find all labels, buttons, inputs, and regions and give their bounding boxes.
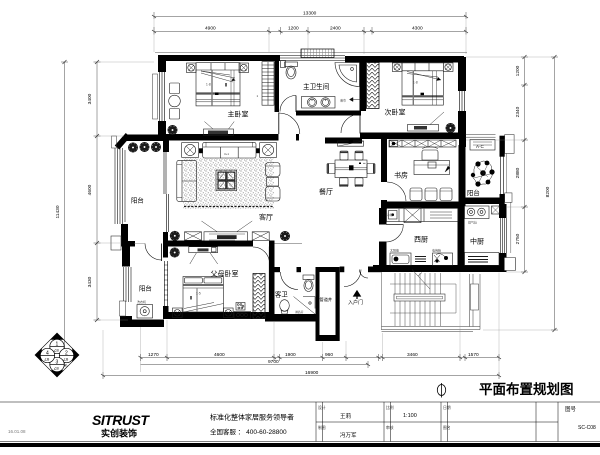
svg-text:淋浴房: 淋浴房 bbox=[295, 310, 304, 314]
svg-text:SITRUST: SITRUST bbox=[92, 412, 150, 428]
svg-text:平面布置规划图: 平面布置规划图 bbox=[479, 381, 574, 397]
svg-text:8200: 8200 bbox=[545, 186, 551, 197]
svg-text:西厨: 西厨 bbox=[414, 236, 428, 244]
svg-text:1270: 1270 bbox=[148, 352, 159, 358]
svg-text:3: 3 bbox=[56, 360, 59, 366]
svg-text:客厅: 客厅 bbox=[259, 213, 273, 222]
svg-text:入户门: 入户门 bbox=[348, 299, 363, 306]
svg-text:1200: 1200 bbox=[515, 65, 521, 76]
svg-text:王莉: 王莉 bbox=[340, 412, 352, 420]
svg-text:4600: 4600 bbox=[214, 352, 225, 358]
svg-text:图名: 图名 bbox=[443, 425, 451, 430]
svg-text:阳台: 阳台 bbox=[467, 188, 480, 197]
svg-text:∠B: ∠B bbox=[63, 358, 69, 362]
svg-text:主卫生间: 主卫生间 bbox=[303, 82, 330, 91]
svg-text:3430: 3430 bbox=[87, 276, 93, 287]
svg-text:2750: 2750 bbox=[515, 233, 521, 244]
svg-text:煤气灶: 煤气灶 bbox=[468, 220, 477, 225]
svg-text:3460: 3460 bbox=[407, 352, 418, 358]
svg-text:中厨: 中厨 bbox=[470, 237, 484, 246]
svg-text:浴巾: 浴巾 bbox=[340, 98, 346, 103]
svg-text:冯万军: 冯万军 bbox=[340, 431, 357, 439]
svg-text:标准化整体家居服务领导者: 标准化整体家居服务领导者 bbox=[210, 413, 294, 422]
svg-text:制图: 制图 bbox=[318, 425, 326, 430]
svg-text:设计: 设计 bbox=[318, 405, 326, 410]
svg-text:2880: 2880 bbox=[515, 167, 521, 178]
svg-text:餐厅: 餐厅 bbox=[319, 187, 333, 196]
svg-text:图号: 图号 bbox=[565, 405, 577, 413]
svg-text:4300: 4300 bbox=[412, 26, 423, 32]
svg-text:日期: 日期 bbox=[443, 405, 451, 410]
svg-text:冰箱: 冰箱 bbox=[387, 213, 393, 217]
svg-text:洗衣机: 洗衣机 bbox=[137, 299, 146, 304]
svg-text:全国客服 ： 400-60-28800: 全国客服 ： 400-60-28800 bbox=[210, 427, 287, 436]
svg-text:管道井: 管道井 bbox=[320, 296, 333, 303]
svg-text:客卫: 客卫 bbox=[275, 290, 288, 299]
svg-text:实创装饰: 实创装饰 bbox=[101, 428, 137, 439]
svg-text:11430: 11430 bbox=[55, 205, 61, 218]
svg-text:1570: 1570 bbox=[468, 352, 479, 358]
svg-text:A·C: A·C bbox=[476, 144, 485, 149]
svg-text:1:100: 1:100 bbox=[403, 413, 417, 419]
svg-text:太阳能: 太阳能 bbox=[390, 248, 399, 253]
svg-text:3+1: 3+1 bbox=[224, 152, 229, 156]
svg-text:∠B: ∠B bbox=[54, 349, 60, 353]
svg-text:1900: 1900 bbox=[285, 352, 296, 358]
svg-text:2340: 2340 bbox=[515, 106, 521, 117]
svg-text:∠B: ∠B bbox=[54, 367, 60, 371]
svg-text:2400: 2400 bbox=[330, 26, 341, 32]
svg-text:4: 4 bbox=[46, 351, 49, 357]
svg-text:次卧室: 次卧室 bbox=[385, 108, 406, 117]
svg-text:1: 1 bbox=[56, 342, 59, 348]
svg-text:SC-C08: SC-C08 bbox=[578, 425, 596, 431]
svg-text:1·8: 1·8 bbox=[413, 81, 418, 85]
svg-text:电烤箱: 电烤箱 bbox=[432, 248, 441, 253]
svg-text:1·8: 1·8 bbox=[206, 83, 211, 87]
svg-text:阳台: 阳台 bbox=[131, 196, 144, 205]
svg-text:审核: 审核 bbox=[386, 425, 394, 430]
svg-text:16900: 16900 bbox=[305, 370, 319, 376]
svg-text:13300: 13300 bbox=[303, 11, 317, 17]
svg-text:3400: 3400 bbox=[87, 93, 93, 104]
svg-text:960: 960 bbox=[325, 352, 333, 358]
svg-text:∠B: ∠B bbox=[44, 358, 50, 362]
svg-text:9700: 9700 bbox=[268, 359, 279, 365]
svg-text:1·5: 1·5 bbox=[196, 292, 201, 296]
svg-text:1200: 1200 bbox=[288, 26, 299, 32]
svg-text:比例: 比例 bbox=[386, 405, 394, 410]
svg-text:阳台: 阳台 bbox=[139, 284, 152, 293]
svg-text:4600: 4600 bbox=[87, 184, 93, 195]
svg-text:主卧室: 主卧室 bbox=[228, 110, 249, 119]
svg-text:2: 2 bbox=[65, 351, 68, 357]
svg-text:16.01.08: 16.01.08 bbox=[8, 429, 26, 434]
svg-text:书房: 书房 bbox=[394, 171, 408, 180]
svg-text:4900: 4900 bbox=[205, 26, 216, 32]
